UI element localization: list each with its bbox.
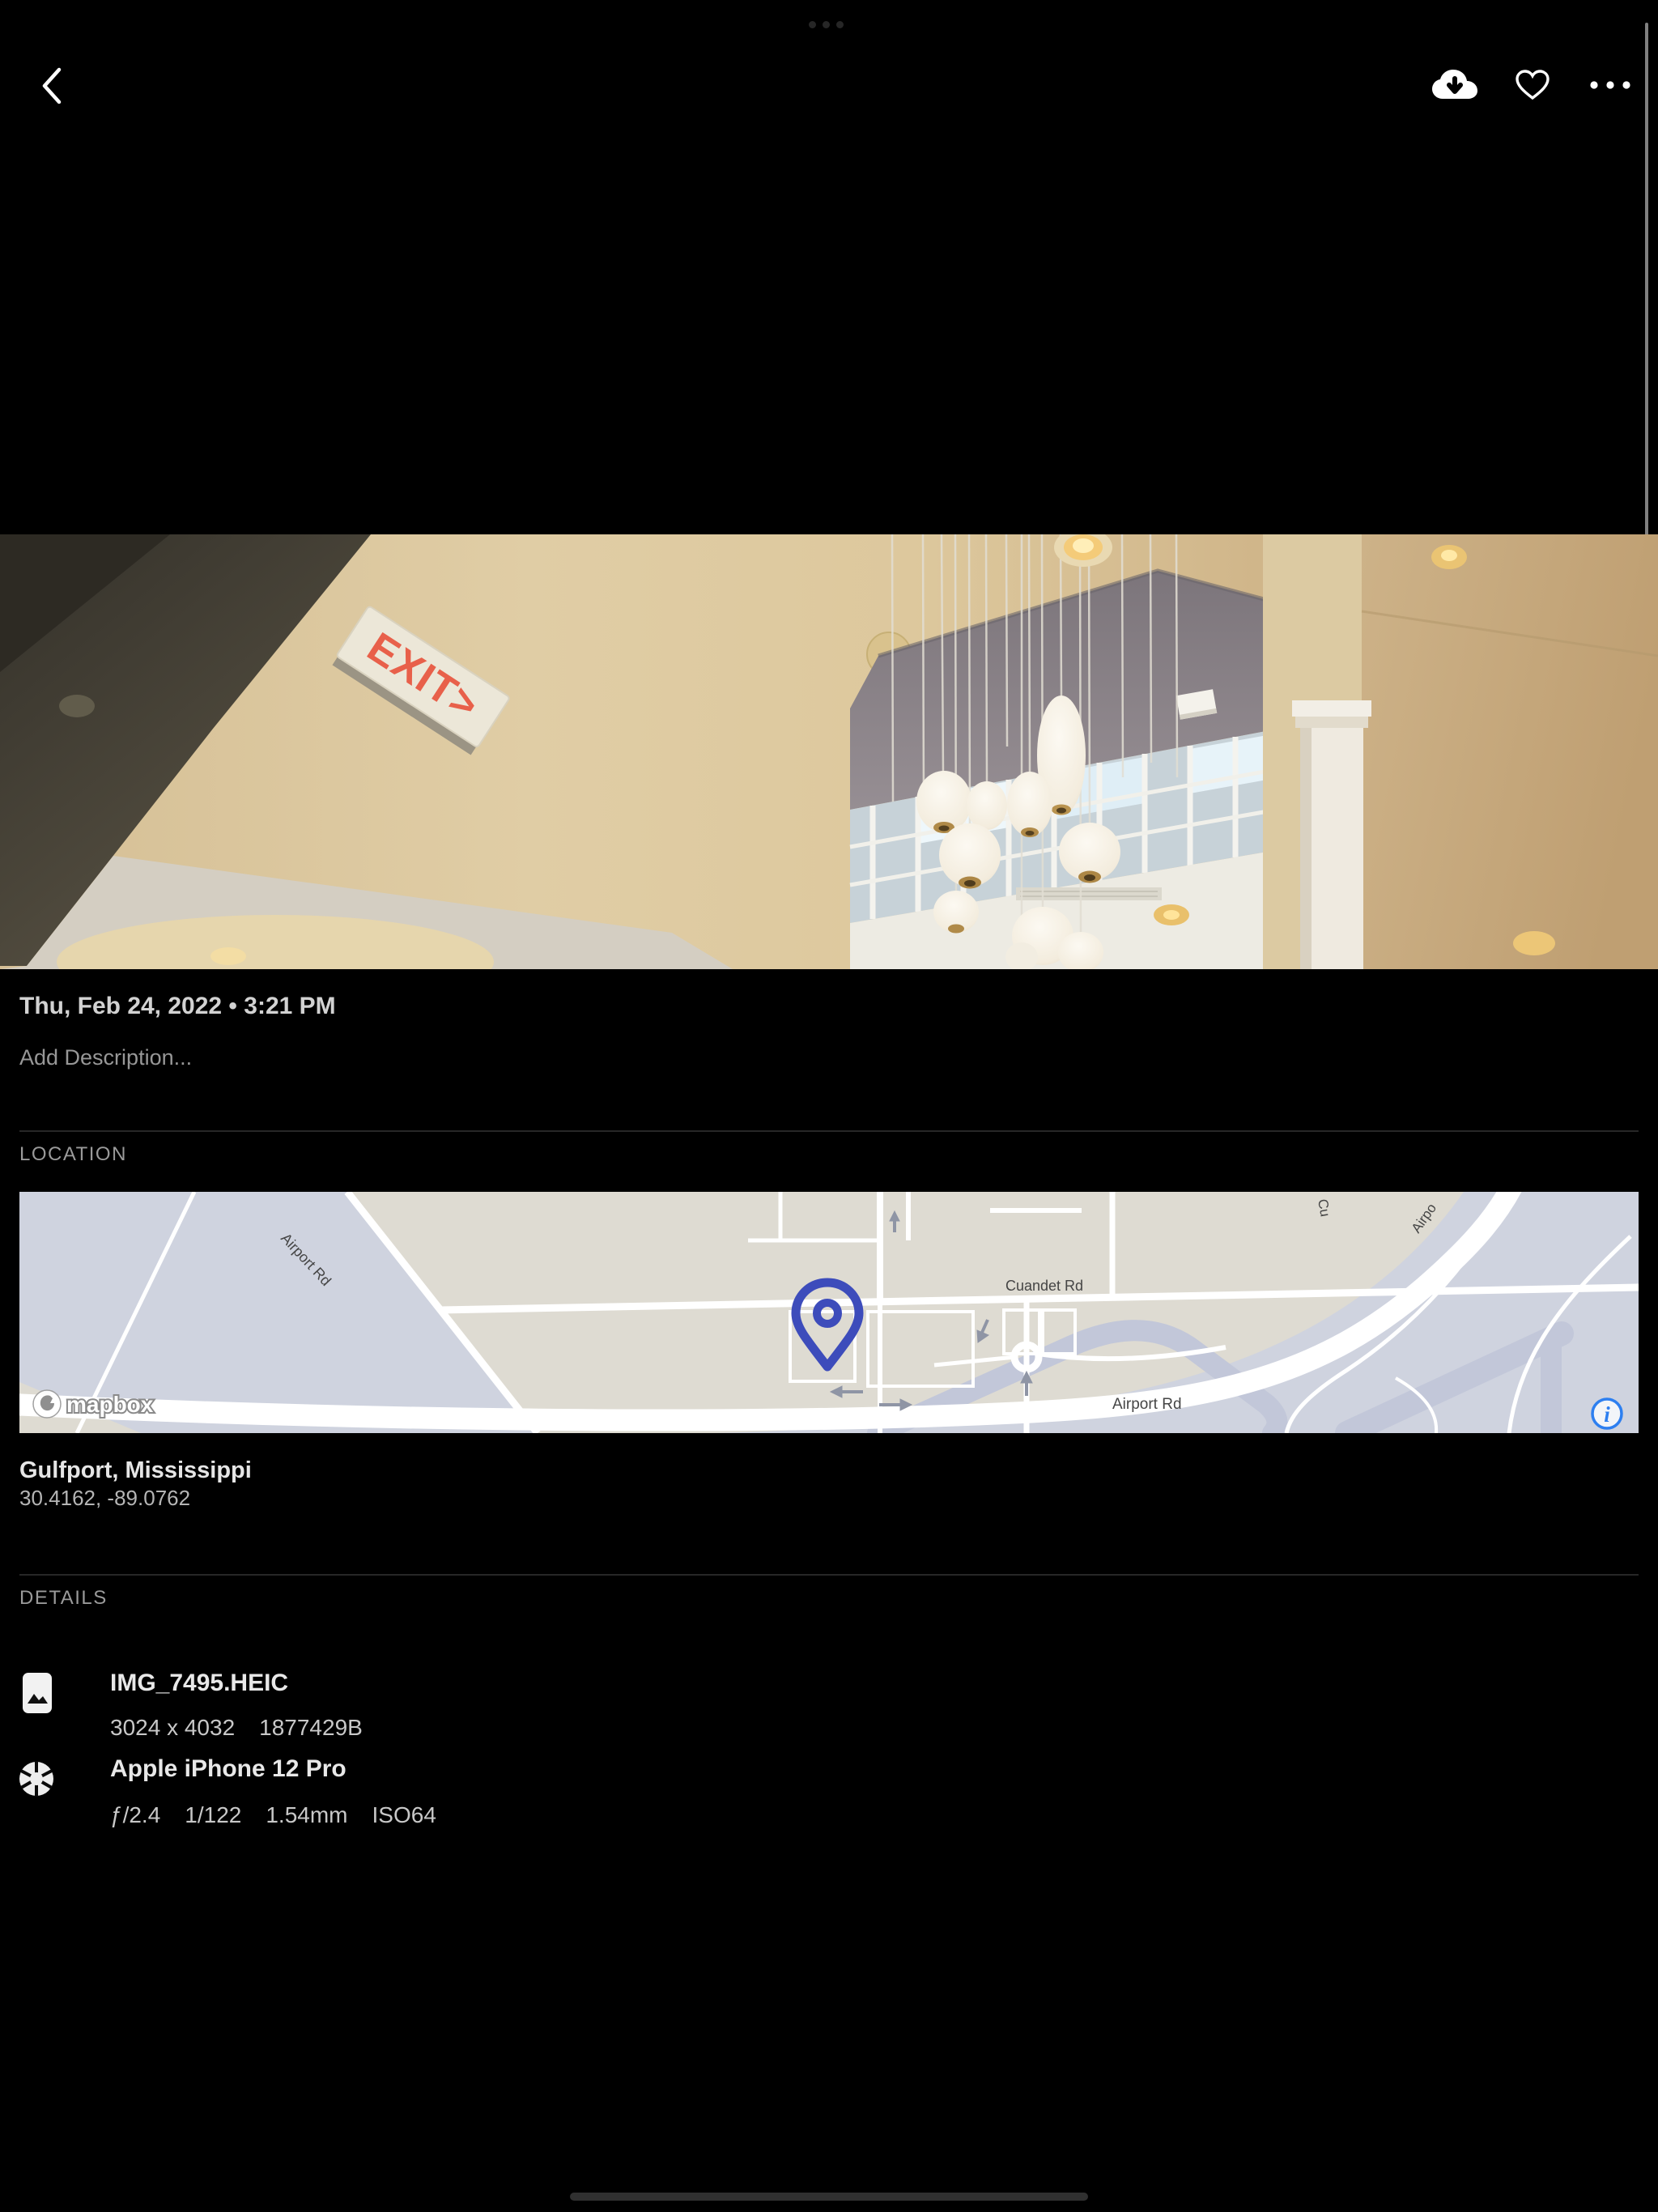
location-place: Gulfport, Mississippi: [19, 1457, 252, 1484]
map-label-partial-cu: Cu: [1315, 1197, 1333, 1218]
divider: [19, 1574, 1639, 1576]
location-header: LOCATION: [19, 1143, 127, 1166]
camera-aperture: ƒ/2.4: [110, 1802, 160, 1827]
photo-can-light: [1513, 931, 1555, 955]
info-icon-glyph: i: [1604, 1402, 1610, 1427]
photo-column-shade: [1300, 728, 1312, 969]
photo-column-capital: [1292, 700, 1371, 717]
ellipsis-icon: [1588, 79, 1633, 91]
details-header: DETAILS: [19, 1587, 108, 1610]
camera-row: Apple iPhone 12 Pro ƒ/2.41/1221.54mmISO6…: [0, 1754, 1658, 1835]
camera-shutter: 1/122: [185, 1802, 241, 1827]
photo-viewer[interactable]: EXIT>: [0, 534, 1658, 969]
photo-right-wall: [1362, 534, 1658, 969]
map-label-cuandet-rd: Cuandet Rd: [1005, 1278, 1083, 1294]
photo-ceiling-light-dim: [59, 695, 95, 717]
photo-file-icon: [23, 1673, 52, 1713]
camera-focal-length: 1.54mm: [266, 1802, 347, 1827]
map-info-button[interactable]: i: [1592, 1399, 1622, 1428]
chevron-left-icon: [38, 66, 66, 105]
photo-vent: [1016, 887, 1162, 900]
home-indicator[interactable]: [570, 2193, 1088, 2201]
photo-date: Thu, Feb 24, 2022 • 3:21 PM: [19, 993, 336, 1020]
camera-name: Apple iPhone 12 Pro: [110, 1755, 346, 1783]
mapbox-attribution[interactable]: mapbox: [33, 1390, 154, 1418]
multitask-dot: [836, 21, 844, 28]
cloud-download-icon: [1431, 68, 1478, 102]
photo-recessed-light: [210, 947, 246, 965]
photo-image: EXIT>: [0, 534, 1658, 969]
file-name: IMG_7495.HEIC: [110, 1670, 288, 1697]
file-meta: 3024 x 40321877429B: [110, 1715, 387, 1741]
favorite-button[interactable]: [1512, 66, 1553, 104]
more-options-button[interactable]: [1585, 71, 1635, 99]
file-row: IMG_7495.HEIC 3024 x 40321877429B: [0, 1668, 1658, 1749]
description-input[interactable]: Add Description...: [19, 1045, 192, 1070]
back-button[interactable]: [31, 63, 73, 108]
multitask-dot: [809, 21, 816, 28]
aperture-icon: [18, 1760, 55, 1797]
location-map[interactable]: Airport Rd Cuandet Rd Airport Rd Cu Airp…: [19, 1192, 1639, 1433]
file-dimensions: 3024 x 4032: [110, 1715, 235, 1740]
divider: [19, 1130, 1639, 1132]
download-button[interactable]: [1430, 65, 1480, 105]
multitask-indicator[interactable]: [806, 18, 847, 32]
mapbox-logo-text: mapbox: [66, 1392, 154, 1417]
map-canvas: Airport Rd Cuandet Rd Airport Rd Cu Airp…: [19, 1192, 1639, 1433]
heart-icon: [1515, 69, 1550, 101]
map-label-airport-rd-main: Airport Rd: [1112, 1396, 1182, 1413]
multitask-dot: [823, 21, 830, 28]
file-size: 1877429B: [259, 1715, 363, 1740]
photo-can-light-core: [1163, 910, 1180, 920]
photo-can-light-core: [1441, 550, 1457, 561]
photo-column-band: [1295, 717, 1368, 728]
location-coordinates: 30.4162, -89.0762: [19, 1486, 190, 1511]
camera-iso: ISO64: [372, 1802, 436, 1827]
camera-settings: ƒ/2.41/1221.54mmISO64: [110, 1802, 461, 1828]
